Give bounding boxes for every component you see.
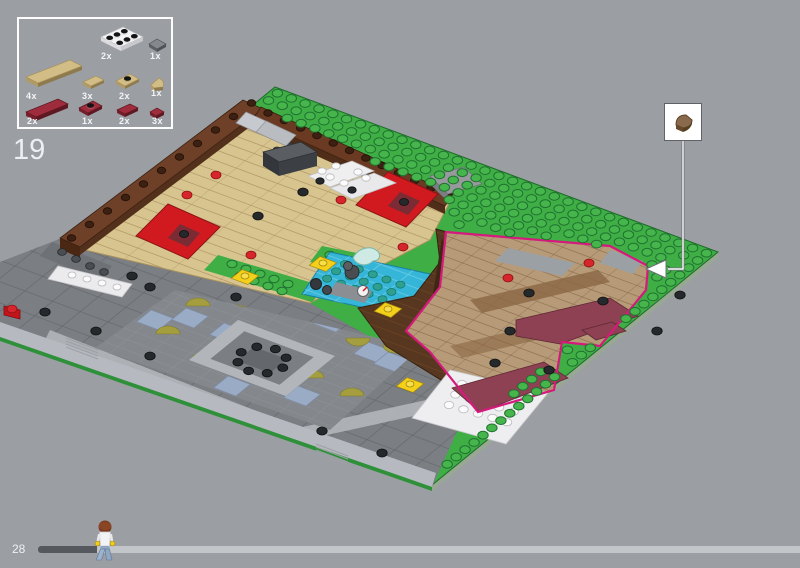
- part-qty-label: 2x: [27, 116, 38, 126]
- part-white-2x3-plate-icon: [99, 25, 145, 53]
- part-qty-label: 2x: [101, 51, 112, 61]
- minifigure-progress-marker[interactable]: [93, 519, 117, 563]
- page-number: 28: [12, 542, 25, 556]
- part-qty-label: 1x: [82, 116, 93, 126]
- part-dark-red-1x2-jumper-plate-icon: [77, 96, 105, 117]
- part-tan-1x6-tile-icon: [24, 57, 86, 90]
- callout-box: [664, 103, 702, 141]
- part-qty-label: 2x: [119, 116, 130, 126]
- hand-icon: [110, 541, 115, 546]
- parts-panel: 2x 1x 4x 3x: [17, 17, 173, 129]
- part-qty-label: 1x: [150, 51, 161, 61]
- callout-piece-quarter-tile-icon: [666, 105, 700, 139]
- progress-track[interactable]: [38, 546, 800, 553]
- part-tan-1x2-jumper-plate-icon: [114, 69, 142, 90]
- part-qty-label: 1x: [151, 88, 162, 98]
- part-qty-label: 3x: [152, 116, 163, 126]
- progress-fill: [38, 546, 97, 553]
- hand-icon: [95, 541, 100, 546]
- instruction-page: 2x 1x 4x 3x: [0, 0, 800, 568]
- part-tan-1x2-tile-icon: [81, 72, 107, 90]
- step-number: 19: [13, 134, 45, 167]
